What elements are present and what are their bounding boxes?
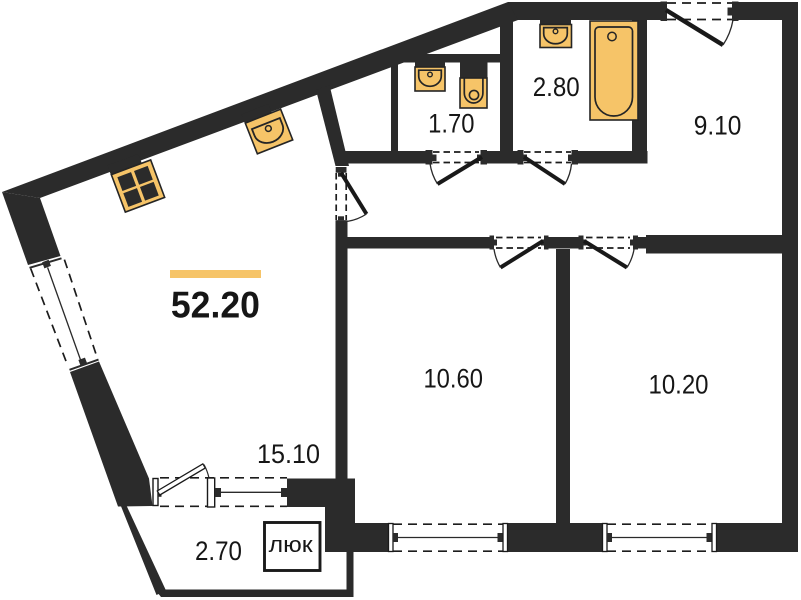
svg-text:2.80: 2.80: [533, 72, 580, 102]
svg-text:10.60: 10.60: [423, 364, 483, 394]
svg-text:люк: люк: [269, 532, 313, 557]
svg-text:10.20: 10.20: [649, 370, 709, 400]
svg-text:9.10: 9.10: [694, 111, 742, 141]
svg-text:15.10: 15.10: [257, 439, 320, 469]
svg-text:2.70: 2.70: [195, 536, 242, 566]
svg-text:52.20: 52.20: [171, 284, 260, 325]
svg-text:1.70: 1.70: [428, 109, 474, 139]
